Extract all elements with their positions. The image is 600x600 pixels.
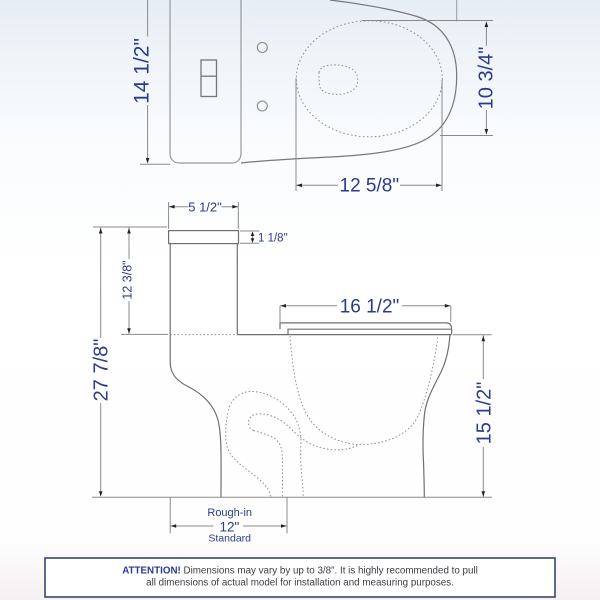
svg-text:27 7/8": 27 7/8" [91,339,113,402]
svg-text:1 1/8": 1 1/8" [258,232,288,244]
svg-text:10 3/4": 10 3/4" [476,47,498,110]
svg-text:12 3/8": 12 3/8" [121,260,135,299]
svg-text:15 1/2": 15 1/2" [474,382,496,445]
svg-text:Standard: Standard [208,532,251,544]
svg-text:all dimensions of actual model: all dimensions of actual model for insta… [146,578,454,589]
svg-text:5 1/2": 5 1/2" [188,199,222,214]
svg-text:14 1/2": 14 1/2" [131,38,154,104]
svg-text:Rough-in: Rough-in [207,507,252,519]
svg-text:16 1/2": 16 1/2" [340,296,400,317]
svg-text:ATTENTION! Dimensions may vary: ATTENTION! Dimensions may vary by up to … [122,566,478,577]
svg-text:12 5/8": 12 5/8" [340,175,400,196]
